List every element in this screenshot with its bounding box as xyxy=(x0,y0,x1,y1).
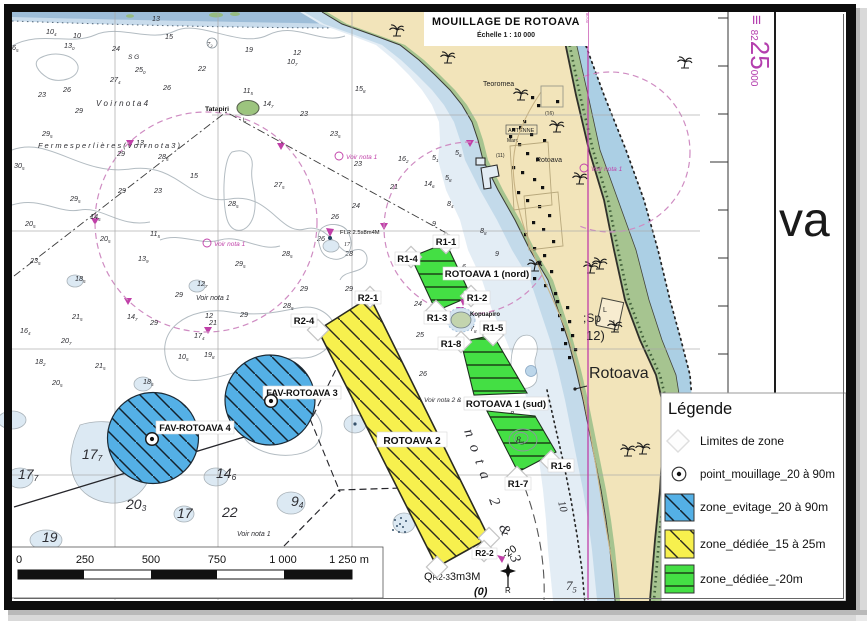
svg-text:23: 23 xyxy=(37,90,46,99)
svg-text:Teoromea: Teoromea xyxy=(483,81,514,88)
svg-text:R: R xyxy=(505,586,511,595)
svg-text:R1-7: R1-7 xyxy=(508,479,529,490)
svg-text:S G: S G xyxy=(128,54,139,61)
svg-text:29: 29 xyxy=(174,290,183,299)
svg-text:R1-8: R1-8 xyxy=(441,339,462,350)
svg-text:Voir nota 1: Voir nota 1 xyxy=(196,295,230,302)
svg-text:zone_evitage_20 à 90m: zone_evitage_20 à 90m xyxy=(700,500,828,514)
svg-text:ROTOAVA 1 (sud): ROTOAVA 1 (sud) xyxy=(466,399,546,410)
svg-text:28: 28 xyxy=(344,249,353,258)
svg-text:17: 17 xyxy=(177,505,194,521)
svg-text:zone_dédiée_15 à 25m: zone_dédiée_15 à 25m xyxy=(700,537,825,551)
svg-text:Voir nota 1: Voir nota 1 xyxy=(214,241,246,248)
svg-text:750: 750 xyxy=(208,554,226,566)
svg-text:Voir nota 1: Voir nota 1 xyxy=(346,154,378,161)
svg-text:R1-6: R1-6 xyxy=(551,461,572,472)
svg-text:1 000: 1 000 xyxy=(269,554,297,566)
svg-text:R2-2: R2-2 xyxy=(475,548,494,558)
svg-text:24: 24 xyxy=(351,201,360,210)
svg-text:24: 24 xyxy=(111,44,120,53)
svg-text:29: 29 xyxy=(116,149,125,158)
svg-text:(11): (11) xyxy=(496,153,505,159)
svg-text:FI.R 2.5s8m4M: FI.R 2.5s8m4M xyxy=(340,230,380,236)
svg-text:21: 21 xyxy=(208,318,217,327)
svg-text:29: 29 xyxy=(149,318,158,327)
svg-text:R1-1: R1-1 xyxy=(436,237,457,248)
svg-text:12: 12 xyxy=(293,48,301,57)
svg-text:9: 9 xyxy=(495,249,499,258)
svg-text:;Sp: ;Sp xyxy=(583,311,601,325)
svg-text:0: 0 xyxy=(16,554,22,566)
svg-text:ROTOAVA 2: ROTOAVA 2 xyxy=(383,436,441,447)
svg-text:23: 23 xyxy=(153,186,162,195)
svg-text:R1-5: R1-5 xyxy=(483,323,504,334)
svg-text:12): 12) xyxy=(586,328,605,343)
svg-text:L: L xyxy=(603,307,607,314)
svg-text:FAV-ROTOAVA 3: FAV-ROTOAVA 3 xyxy=(266,388,337,398)
svg-text:R1-2: R1-2 xyxy=(467,293,488,304)
svg-text:Rotoava: Rotoava xyxy=(589,365,649,382)
svg-text:250: 250 xyxy=(76,554,94,566)
svg-text:FAV-ROTOAVA 4: FAV-ROTOAVA 4 xyxy=(159,423,231,433)
svg-text:MOUILLAGE DE ROTOAVA: MOUILLAGE DE ROTOAVA xyxy=(432,16,580,28)
svg-text:26: 26 xyxy=(330,212,339,221)
svg-text:25: 25 xyxy=(415,330,425,339)
svg-text:Légende: Légende xyxy=(668,400,732,418)
svg-text:29: 29 xyxy=(239,310,248,319)
svg-text:26: 26 xyxy=(62,85,71,94)
svg-text:V o i r n o t a 4: V o i r n o t a 4 xyxy=(96,99,149,108)
svg-text:500: 500 xyxy=(142,554,160,566)
svg-text:15: 15 xyxy=(165,32,174,41)
svg-text:Voir nota 1: Voir nota 1 xyxy=(237,531,271,538)
svg-text:29: 29 xyxy=(117,186,126,195)
svg-text:ROTOAVA 1 (nord): ROTOAVA 1 (nord) xyxy=(445,269,529,280)
svg-text:15: 15 xyxy=(190,171,199,180)
svg-text:29: 29 xyxy=(344,284,353,293)
svg-text:1 250 m: 1 250 m xyxy=(329,554,369,566)
svg-text:19: 19 xyxy=(42,529,58,545)
svg-text:R1-4: R1-4 xyxy=(397,254,418,265)
svg-text:zone_dédiée_-20m: zone_dédiée_-20m xyxy=(700,572,803,586)
svg-text:va: va xyxy=(779,194,830,247)
svg-text:29: 29 xyxy=(74,106,83,115)
svg-text:24: 24 xyxy=(413,299,422,308)
svg-text:Voir nota 2 &: Voir nota 2 & xyxy=(424,397,461,404)
svg-text:17: 17 xyxy=(344,242,351,248)
svg-text:29: 29 xyxy=(299,284,308,293)
svg-text:(16): (16) xyxy=(545,111,554,117)
svg-text:F e r m e s p e r l i è r e: F e r m e s p e r l i è r e s ( v o i r … xyxy=(38,141,180,150)
svg-text:26: 26 xyxy=(316,234,325,243)
svg-text:13: 13 xyxy=(152,14,160,23)
svg-text:26: 26 xyxy=(418,369,427,378)
svg-text:22: 22 xyxy=(221,504,238,520)
svg-text:Échelle 1 : 10 000: Échelle 1 : 10 000 xyxy=(477,30,535,39)
svg-text:23: 23 xyxy=(299,109,308,118)
svg-text:22: 22 xyxy=(197,64,206,73)
svg-text:Voir nota 1: Voir nota 1 xyxy=(591,166,623,173)
svg-text:Limites de zone: Limites de zone xyxy=(700,434,784,448)
svg-text:26: 26 xyxy=(162,83,171,92)
svg-text:R2-4: R2-4 xyxy=(294,316,315,327)
svg-text:80 00: 80 00 xyxy=(585,13,590,24)
svg-text:9: 9 xyxy=(432,219,436,228)
svg-text:R2-1: R2-1 xyxy=(358,293,379,304)
svg-text:Kopuapiro: Kopuapiro xyxy=(470,312,500,318)
svg-text:19: 19 xyxy=(245,45,253,54)
svg-text:21: 21 xyxy=(389,182,398,191)
svg-text:point_mouillage_20 à 90m: point_mouillage_20 à 90m xyxy=(700,469,835,481)
svg-text:R1-3: R1-3 xyxy=(427,313,448,324)
svg-text:(0): (0) xyxy=(474,586,488,598)
svg-text:10: 10 xyxy=(73,31,81,40)
